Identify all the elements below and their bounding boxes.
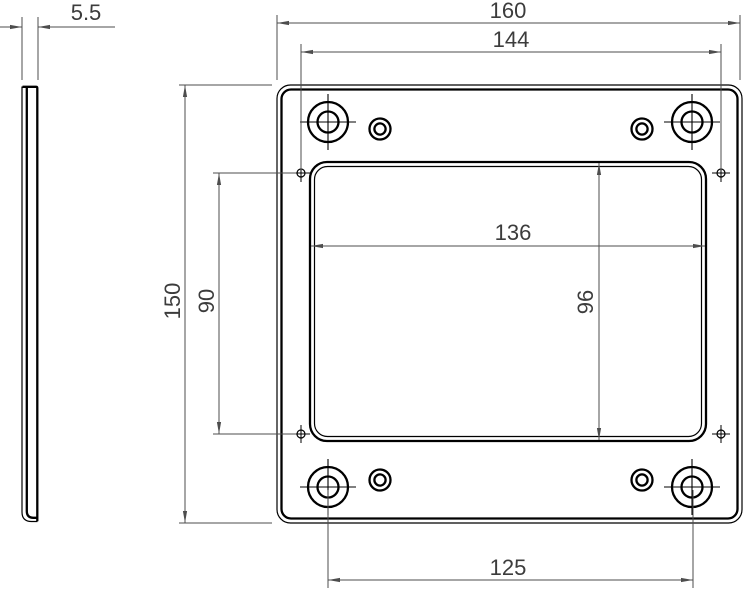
counterbore-hole-top-right xyxy=(664,94,720,150)
small-hole-top-left xyxy=(370,119,391,140)
dim-label-cutout-width: 136 xyxy=(495,220,532,245)
small-hole-outer-circle xyxy=(370,119,391,140)
front-view xyxy=(277,85,742,523)
small-hole-inner-circle xyxy=(636,474,647,485)
small-hole-bottom-left xyxy=(370,470,391,491)
side-view-face-edge xyxy=(27,88,37,518)
small-hole-outer-circle xyxy=(632,470,653,491)
dim-upper-pattern-width xyxy=(301,44,721,170)
dim-thickness xyxy=(0,17,115,80)
counterbore-hole-top-left xyxy=(300,94,356,150)
dimensions xyxy=(0,15,740,588)
counterbore-hole-bottom-right xyxy=(664,459,720,515)
side-view-top-right-edge xyxy=(23,87,38,522)
small-hole-bottom-right xyxy=(632,470,653,491)
small-hole-outer-circle xyxy=(370,470,391,491)
dim-label-thickness: 5.5 xyxy=(71,0,102,25)
technical-drawing-canvas: 5.5 160 144 136 96 150 90 125 xyxy=(0,0,750,594)
dimension-labels: 5.5 160 144 136 96 150 90 125 xyxy=(71,0,598,580)
small-hole-outer-circle xyxy=(632,119,653,140)
part-outlines xyxy=(22,85,742,523)
dim-label-upper-pattern-width: 144 xyxy=(493,27,530,52)
cutout-edge xyxy=(310,162,706,441)
dim-label-overall-width: 160 xyxy=(490,0,527,23)
dim-label-cutout-height: 96 xyxy=(573,290,598,314)
center-mark-bottom-right xyxy=(712,425,730,443)
dim-overall-height xyxy=(179,85,272,523)
technical-drawing-page: 5.5 160 144 136 96 150 90 125 xyxy=(0,0,750,594)
small-hole-top-right xyxy=(632,119,653,140)
small-hole-inner-circle xyxy=(374,474,385,485)
dim-label-bolt-hole-spacing: 125 xyxy=(490,555,527,580)
dim-left-pattern-height xyxy=(213,173,296,434)
small-hole-inner-circle xyxy=(374,123,385,134)
cutout-inner-edge xyxy=(315,167,702,437)
small-hole-inner-circle xyxy=(636,123,647,134)
side-view xyxy=(22,87,38,522)
dim-label-overall-height: 150 xyxy=(160,283,185,320)
plate-face-edge xyxy=(282,90,738,519)
plate-outer-edge xyxy=(277,85,742,523)
dim-label-left-pattern-height: 90 xyxy=(194,289,219,313)
side-view-silhouette xyxy=(22,87,38,522)
